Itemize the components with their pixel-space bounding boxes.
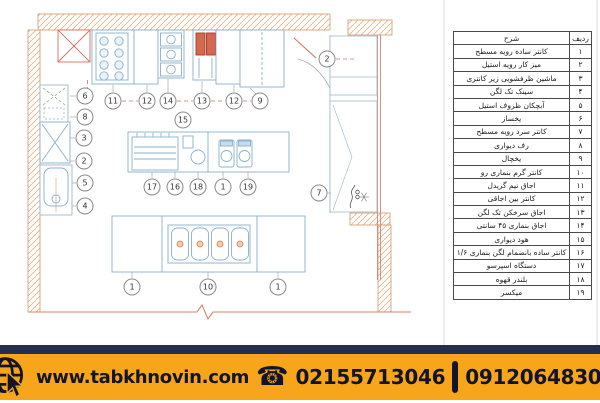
- legend-row-number: ۲: [570, 58, 592, 71]
- legend-row-number: ۶: [570, 112, 592, 125]
- legend-row-description: دستگاه اسپرسو: [454, 259, 570, 272]
- legend-row-description: کانتر گرم بنماری رو: [454, 165, 570, 178]
- legend-row: ۱۴اجاق بنماری ۴۵ سانتی: [454, 219, 592, 232]
- x-box-cabinet: [58, 30, 90, 62]
- legend-row: ۲میز کار رویه استیل: [454, 58, 592, 71]
- legend-row: ۱۰کانتر گرم بنماری رو: [454, 165, 592, 178]
- legend-row: ۹یخچال: [454, 152, 592, 165]
- legend-row-description: اجاق بنماری ۴۵ سانتی: [454, 219, 570, 232]
- bottom-banner: www.tabkhnovin.com ☎ 02155713046 0912064…: [0, 345, 600, 400]
- bottom-wall-break-line: [28, 305, 411, 319]
- legend-row-description: اجاق نیم گریدل: [454, 179, 570, 192]
- legend-row: ۱۸بلندر قهوه: [454, 273, 592, 286]
- corridor-units: [330, 36, 377, 212]
- legend-row: ۱۷دستگاه اسپرسو: [454, 259, 592, 272]
- legend-row: ۱۶کانتر ساده بانضمام لگن بنماری ۱/۶: [454, 246, 592, 259]
- legend-row-number: ۱: [570, 45, 592, 58]
- legend-row: ۱۲کانتر بین اجاقی: [454, 192, 592, 205]
- legend-row-description: هود دیواری: [454, 232, 570, 245]
- legend-row: ۳ماشین ظرفشویی زیر کانتری: [454, 72, 592, 85]
- legend-row: ۶یخساز: [454, 112, 592, 125]
- legend-row-description: بلندر قهوه: [454, 273, 570, 286]
- legend-row-number: ۸: [570, 139, 592, 152]
- legend-row-number: ۱۶: [570, 246, 592, 259]
- legend-row-description: کانتر سرد رویه مسطح: [454, 125, 570, 138]
- banner-content: www.tabkhnovin.com ☎ 02155713046 0912064…: [0, 354, 600, 400]
- legend-row-description: ماشین ظرفشویی زیر کانتری: [454, 72, 570, 85]
- website-url: www.tabkhnovin.com: [36, 367, 249, 388]
- legend-row-number: ۹: [570, 152, 592, 165]
- legend-row-description: میکسر: [454, 286, 570, 299]
- smartphone-icon: [452, 361, 458, 393]
- legend-row-description: یخچال: [454, 152, 570, 165]
- legend-row-description: کانتر ساده رویه مسطح: [454, 45, 570, 58]
- legend-row: ۷کانتر سرد رویه مسطح: [454, 125, 592, 138]
- telephone-icon: ☎: [256, 364, 288, 390]
- legend-row-description: آبچکان ظروف استیل: [454, 98, 570, 111]
- legend-row-description: یخساز: [454, 112, 570, 125]
- legend-row-number: ۱۸: [570, 273, 592, 286]
- legend-header-row: ردیف شرح: [454, 32, 592, 45]
- legend-row: ۵آبچکان ظروف استیل: [454, 98, 592, 111]
- legend-row-number: ۷: [570, 125, 592, 138]
- legend-row-number: ۱۹: [570, 286, 592, 299]
- legend-row-number: ۳: [570, 72, 592, 85]
- banner-top-stripe: [0, 345, 600, 354]
- legend-row: ۱۹میکسر: [454, 286, 592, 299]
- left-wall-equipment: [40, 85, 72, 215]
- door-swing: [294, 38, 331, 90]
- legend-row-number: ۱۴: [570, 219, 592, 232]
- legend-row-number: ۱۳: [570, 206, 592, 219]
- legend-row-number: ۴: [570, 85, 592, 98]
- legend-row: ۱۳اجاق سرخکن تک لگن: [454, 206, 592, 219]
- top-row-equipment: [92, 30, 284, 87]
- legend-row: ۴سینک تک لگن: [454, 85, 592, 98]
- sink: [40, 165, 72, 215]
- legend-row-number: ۱۰: [570, 165, 592, 178]
- legend-row-description: رف دیواری: [454, 139, 570, 152]
- fryer-unit: [193, 30, 216, 80]
- upper-island: [128, 132, 289, 172]
- legend-row: ۱۵هود دیواری: [454, 232, 592, 245]
- phone-number-mobile: 09120648301: [465, 365, 600, 389]
- legend-row-number: ۱۲: [570, 192, 592, 205]
- legend-table: ردیف شرح ۱کانتر ساده رویه مسطح۲میز کار ر…: [453, 31, 592, 300]
- legend-table-body: ۱کانتر ساده رویه مسطح۲میز کار رویه استیل…: [454, 45, 592, 299]
- legend-row-description: سینک تک لگن: [454, 85, 570, 98]
- legend-row: ۱کانتر ساده رویه مسطح: [454, 45, 592, 58]
- legend-row-number: ۱۵: [570, 232, 592, 245]
- legend-row-number: ۵: [570, 98, 592, 111]
- legend-row: ۸رف دیواری: [454, 139, 592, 152]
- legend-row-description: میز کار رویه استیل: [454, 58, 570, 71]
- phone-number-landline: 02155713046: [295, 365, 445, 389]
- legend-row-description: اجاق سرخکن تک لگن: [454, 206, 570, 219]
- lower-island: [112, 216, 305, 272]
- legend-header-description: شرح: [454, 32, 570, 45]
- legend-row-description: کانتر ساده بانضمام لگن بنماری ۱/۶: [454, 246, 570, 259]
- legend-row: ۱۱اجاق نیم گریدل: [454, 179, 592, 192]
- legend-row-number: ۱۷: [570, 259, 592, 272]
- legend-header-row-number: ردیف: [570, 32, 592, 45]
- legend-row-description: کانتر بین اجاقی: [454, 192, 570, 205]
- legend-row-number: ۱۱: [570, 179, 592, 192]
- globe-cursor-icon: [0, 355, 29, 399]
